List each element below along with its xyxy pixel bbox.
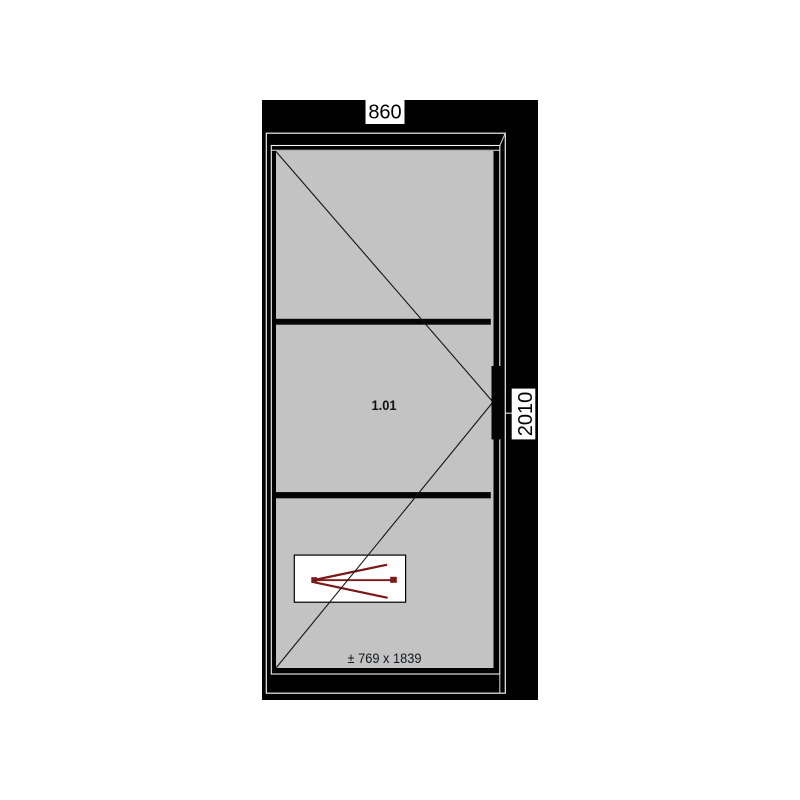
svg-text:2010: 2010 [515, 392, 537, 437]
svg-text:860: 860 [368, 102, 401, 124]
svg-text:1.01: 1.01 [372, 397, 397, 413]
svg-text:± 769 x 1839: ± 769 x 1839 [348, 650, 422, 666]
